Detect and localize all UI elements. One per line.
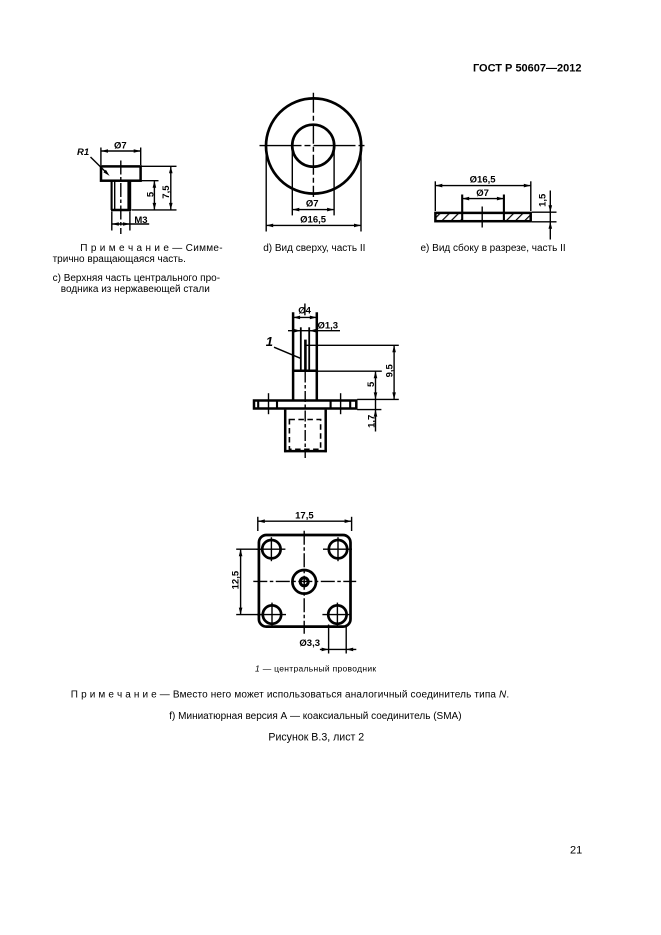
- svg-text:трично вращающаяся часть.: трично вращающаяся часть.: [53, 254, 186, 265]
- svg-text:12,5: 12,5: [231, 570, 242, 589]
- svg-text:Ø7: Ø7: [476, 188, 489, 199]
- svg-text:d) Вид сверху, часть II: d) Вид сверху, часть II: [263, 243, 365, 254]
- svg-text:водника из нержавеющей стали: водника из нержавеющей стали: [61, 284, 210, 295]
- svg-text:Ø1,3: Ø1,3: [318, 320, 339, 331]
- svg-text:7,5: 7,5: [161, 185, 172, 199]
- svg-text:9,5: 9,5: [385, 363, 396, 377]
- svg-text:5: 5: [146, 191, 157, 197]
- svg-text:f) Миниатюрная версия А — коак: f) Миниатюрная версия А — коаксиальный с…: [169, 711, 461, 722]
- svg-text:5: 5: [366, 381, 377, 387]
- svg-text:e) Вид сбоку в разрезе, часть: e) Вид сбоку в разрезе, часть II: [421, 242, 566, 254]
- svg-text:17,5: 17,5: [295, 510, 314, 521]
- svg-text:ГОСТ Р 50607—2012: ГОСТ Р 50607—2012: [473, 63, 582, 75]
- svg-text:П р и м е ч а н и е — Симме-: П р и м е ч а н и е — Симме-: [80, 243, 223, 254]
- svg-text:1 — центральный проводник: 1 — центральный проводник: [255, 663, 376, 673]
- svg-text:Ø7: Ø7: [114, 140, 127, 151]
- svg-text:П р и м е ч а н и е — Вместо н: П р и м е ч а н и е — Вместо него может …: [71, 689, 510, 700]
- svg-text:Ø16,5: Ø16,5: [470, 175, 497, 186]
- svg-text:21: 21: [570, 844, 582, 856]
- svg-text:Ø16,5: Ø16,5: [300, 214, 327, 225]
- svg-text:Ø3,3: Ø3,3: [299, 638, 320, 649]
- svg-text:Рисунок В.3, лист 2: Рисунок В.3, лист 2: [268, 732, 364, 744]
- svg-text:1,5: 1,5: [538, 193, 549, 207]
- svg-text:1: 1: [266, 334, 273, 349]
- svg-text:1,7: 1,7: [366, 415, 377, 428]
- svg-text:M3: M3: [134, 215, 147, 226]
- svg-text:R1: R1: [77, 147, 89, 158]
- svg-text:Ø7: Ø7: [306, 199, 319, 210]
- svg-text:c) Верхняя часть центрального: c) Верхняя часть центрального про-: [53, 273, 220, 284]
